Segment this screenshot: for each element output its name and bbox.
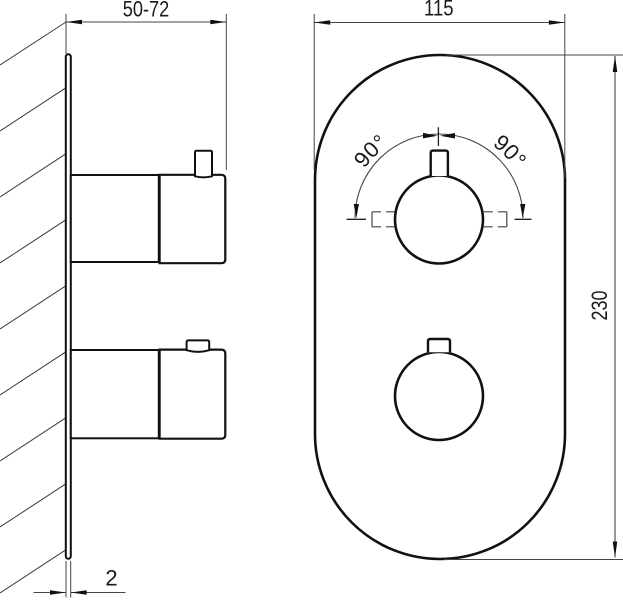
svg-text:115: 115 [424,0,454,21]
svg-text:230: 230 [587,291,612,321]
svg-text:50-72: 50-72 [123,0,170,21]
svg-text:2: 2 [105,566,117,591]
